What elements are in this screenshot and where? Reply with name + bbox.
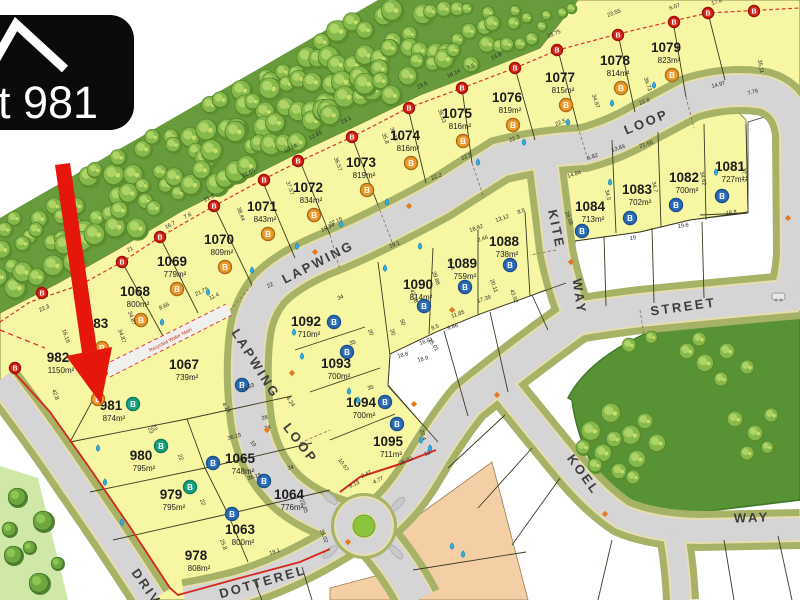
svg-text:1073: 1073 — [346, 155, 377, 170]
svg-text:B: B — [421, 302, 427, 311]
svg-text:1095: 1095 — [373, 434, 404, 449]
svg-text:B: B — [554, 48, 559, 55]
svg-text:B: B — [462, 283, 468, 292]
svg-text:819m²: 819m² — [499, 106, 522, 115]
svg-text:814m²: 814m² — [607, 69, 630, 78]
svg-text:B: B — [138, 316, 144, 325]
svg-text:700m²: 700m² — [676, 186, 699, 195]
svg-text:982: 982 — [47, 350, 70, 365]
svg-text:B: B — [627, 214, 633, 223]
svg-text:B: B — [705, 11, 710, 18]
svg-text:809m²: 809m² — [211, 248, 234, 257]
svg-text:B: B — [719, 192, 725, 201]
svg-text:700m²: 700m² — [353, 411, 376, 420]
svg-text:B: B — [211, 204, 216, 211]
svg-text:1067: 1067 — [169, 357, 199, 372]
svg-text:B: B — [344, 348, 350, 357]
svg-text:1071: 1071 — [247, 199, 278, 214]
svg-text:874m²: 874m² — [103, 414, 126, 423]
svg-text:B: B — [222, 263, 228, 272]
svg-text:B: B — [382, 398, 388, 407]
svg-text:B: B — [459, 86, 464, 93]
svg-text:B: B — [311, 211, 317, 220]
svg-text:B: B — [261, 178, 266, 185]
svg-text:800m²: 800m² — [127, 300, 150, 309]
svg-text:1150m²: 1150m² — [48, 366, 75, 375]
svg-text:1068: 1068 — [120, 284, 151, 299]
svg-text:978: 978 — [185, 548, 208, 563]
svg-text:800m²: 800m² — [232, 538, 255, 547]
svg-text:1072: 1072 — [293, 180, 323, 195]
svg-text:1092: 1092 — [291, 314, 321, 329]
svg-text:1083: 1083 — [622, 182, 653, 197]
svg-text:B: B — [157, 235, 162, 242]
svg-text:1075: 1075 — [442, 106, 473, 121]
svg-text:1065: 1065 — [225, 451, 256, 466]
svg-text:738m²: 738m² — [496, 250, 519, 259]
svg-text:823m²: 823m² — [658, 56, 681, 65]
svg-text:B: B — [187, 483, 193, 492]
svg-text:710m²: 710m² — [298, 330, 321, 339]
svg-text:1082: 1082 — [669, 170, 699, 185]
svg-text:B: B — [210, 459, 216, 468]
svg-text:B: B — [510, 121, 516, 130]
svg-text:B: B — [12, 366, 17, 373]
svg-text:1090: 1090 — [403, 277, 433, 292]
svg-text:1070: 1070 — [204, 232, 234, 247]
svg-text:1088: 1088 — [489, 234, 520, 249]
svg-text:B: B — [349, 135, 354, 142]
svg-text:37.75: 37.75 — [740, 168, 747, 182]
svg-text:B: B — [364, 186, 370, 195]
svg-text:816m²: 816m² — [449, 122, 472, 131]
svg-text:819m²: 819m² — [353, 171, 376, 180]
svg-text:702m²: 702m² — [629, 198, 652, 207]
svg-text:B: B — [229, 510, 235, 519]
svg-text:B: B — [669, 71, 675, 80]
svg-text:1077: 1077 — [545, 70, 575, 85]
svg-text:700m²: 700m² — [328, 372, 351, 381]
svg-text:B: B — [615, 33, 620, 40]
svg-text:B: B — [579, 227, 585, 236]
svg-text:B: B — [673, 201, 679, 210]
svg-text:739m²: 739m² — [176, 373, 199, 382]
svg-text:B: B — [331, 318, 337, 327]
svg-text:980: 980 — [130, 448, 153, 463]
svg-text:B: B — [751, 9, 756, 16]
svg-text:B: B — [394, 420, 400, 429]
svg-text:979: 979 — [160, 487, 183, 502]
svg-text:B: B — [406, 106, 411, 113]
svg-text:B: B — [618, 84, 624, 93]
svg-text:711m²: 711m² — [380, 450, 402, 459]
svg-text:1079: 1079 — [651, 40, 681, 55]
svg-text:B: B — [295, 159, 300, 166]
svg-text:B: B — [158, 442, 164, 451]
svg-text:B: B — [130, 400, 136, 409]
svg-text:795m²: 795m² — [163, 503, 186, 512]
svg-text:B: B — [174, 285, 180, 294]
svg-text:B: B — [39, 291, 44, 298]
svg-text:815m²: 815m² — [552, 86, 575, 95]
svg-text:843m²: 843m² — [254, 215, 277, 224]
svg-text:795m²: 795m² — [133, 464, 156, 473]
svg-text:B: B — [671, 20, 676, 27]
svg-text:B: B — [265, 230, 271, 239]
svg-text:1063: 1063 — [225, 522, 256, 537]
svg-text:1069: 1069 — [157, 254, 187, 269]
svg-text:713m²: 713m² — [582, 215, 605, 224]
svg-text:WAY: WAY — [734, 509, 770, 525]
svg-text:1076: 1076 — [492, 90, 523, 105]
svg-text:779m²: 779m² — [164, 270, 187, 279]
svg-text:1084: 1084 — [575, 199, 606, 214]
svg-text:B: B — [119, 260, 124, 267]
svg-text:759m²: 759m² — [454, 272, 477, 281]
svg-text:1094: 1094 — [346, 395, 377, 410]
svg-text:B: B — [512, 66, 517, 73]
svg-text:1078: 1078 — [600, 53, 631, 68]
svg-text:t 981: t 981 — [0, 77, 98, 128]
svg-text:B: B — [563, 101, 569, 110]
svg-text:816m²: 816m² — [397, 144, 420, 153]
svg-text:B: B — [507, 261, 513, 270]
svg-text:B: B — [460, 137, 466, 146]
svg-text:B: B — [408, 159, 414, 168]
svg-text:19: 19 — [629, 235, 636, 242]
svg-text:834m²: 834m² — [300, 196, 323, 205]
svg-text:808m²: 808m² — [188, 564, 211, 573]
